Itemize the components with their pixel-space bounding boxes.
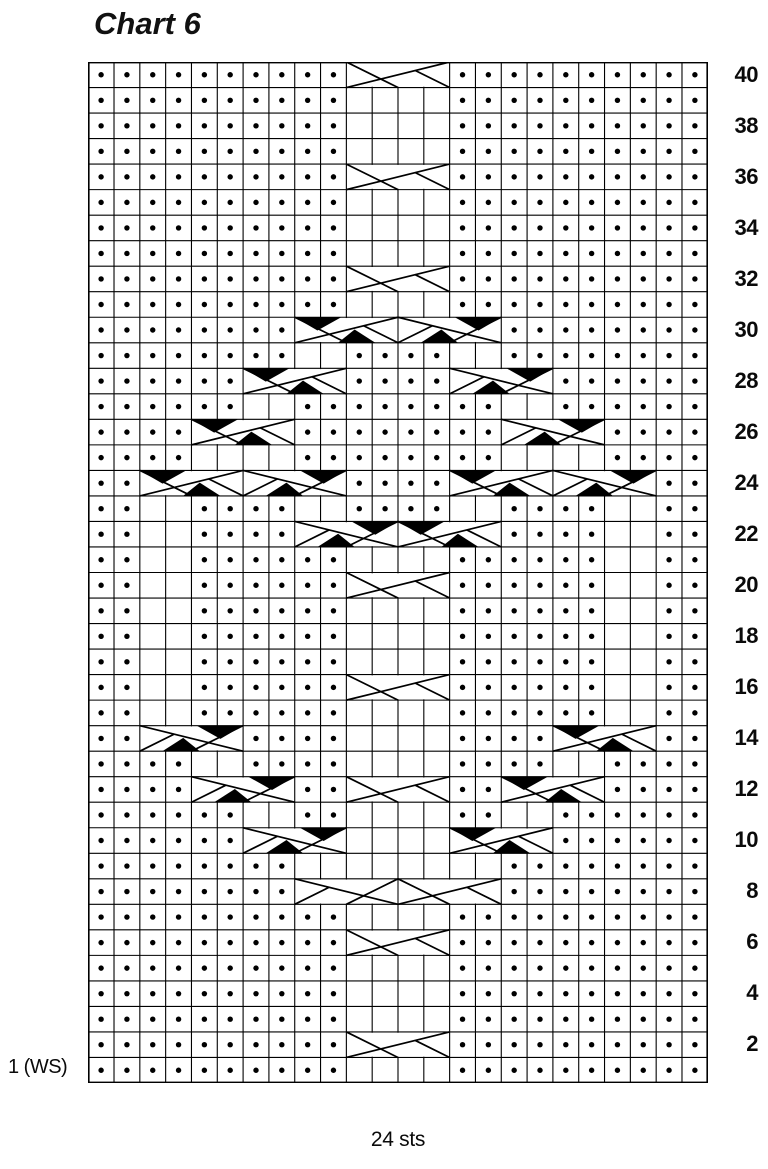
purl-dot xyxy=(563,378,568,383)
purl-dot xyxy=(202,991,207,996)
purl-dot xyxy=(511,940,516,945)
purl-dot xyxy=(305,634,310,639)
stitch-count-label: 24 sts xyxy=(88,1128,708,1152)
purl-dot xyxy=(227,1042,232,1047)
purl-dot xyxy=(666,200,671,205)
cable-symbol xyxy=(191,419,294,445)
cable-symbol xyxy=(553,726,656,752)
purl-dot xyxy=(253,685,258,690)
purl-dot xyxy=(460,302,465,307)
cable-symbol xyxy=(346,777,449,803)
purl-dot xyxy=(666,98,671,103)
purl-dot xyxy=(589,532,594,537)
purl-dot xyxy=(202,251,207,256)
purl-dot xyxy=(98,1016,103,1021)
purl-dot xyxy=(460,1068,465,1073)
purl-dot xyxy=(227,378,232,383)
purl-dot xyxy=(98,302,103,307)
cable-symbol xyxy=(243,368,346,394)
purl-dot xyxy=(537,685,542,690)
purl-dot xyxy=(666,276,671,281)
purl-dot xyxy=(331,251,336,256)
purl-dot xyxy=(666,557,671,562)
purl-dot xyxy=(434,455,439,460)
purl-dot xyxy=(589,991,594,996)
cable-symbol xyxy=(398,317,501,343)
purl-dot xyxy=(98,276,103,281)
purl-dot xyxy=(279,685,284,690)
purl-dot xyxy=(227,608,232,613)
purl-dot xyxy=(615,761,620,766)
purl-dot xyxy=(150,302,155,307)
purl-dot xyxy=(692,251,697,256)
cable-symbol xyxy=(243,470,346,496)
purl-dot xyxy=(486,200,491,205)
purl-dot xyxy=(641,455,646,460)
purl-dot xyxy=(305,174,310,179)
purl-dot xyxy=(666,251,671,256)
purl-dot xyxy=(382,455,387,460)
purl-dot xyxy=(511,710,516,715)
purl-dot xyxy=(537,1042,542,1047)
purl-dot xyxy=(692,710,697,715)
purl-dot xyxy=(279,225,284,230)
purl-dot xyxy=(563,98,568,103)
purl-dot xyxy=(537,174,542,179)
purl-dot xyxy=(486,72,491,77)
purl-dot xyxy=(202,1068,207,1073)
purl-dot xyxy=(331,761,336,766)
purl-dot xyxy=(150,1068,155,1073)
purl-dot xyxy=(305,736,310,741)
purl-dot xyxy=(408,353,413,358)
purl-dot xyxy=(511,532,516,537)
purl-dot xyxy=(279,327,284,332)
purl-dot xyxy=(357,455,362,460)
purl-dot xyxy=(511,914,516,919)
purl-dot xyxy=(176,429,181,434)
purl-dot xyxy=(486,123,491,128)
purl-dot xyxy=(589,1042,594,1047)
purl-dot xyxy=(692,608,697,613)
purl-dot xyxy=(227,532,232,537)
purl-dot xyxy=(666,710,671,715)
purl-dot xyxy=(641,991,646,996)
purl-dot xyxy=(589,557,594,562)
purl-dot xyxy=(641,1068,646,1073)
cable-symbol xyxy=(450,470,553,496)
purl-dot xyxy=(692,404,697,409)
purl-dot xyxy=(460,200,465,205)
purl-dot xyxy=(253,583,258,588)
purl-dot xyxy=(176,225,181,230)
purl-dot xyxy=(589,710,594,715)
purl-dot xyxy=(589,225,594,230)
purl-dot xyxy=(511,302,516,307)
purl-dot xyxy=(615,72,620,77)
purl-dot xyxy=(615,455,620,460)
row-number: 4 xyxy=(714,980,758,1006)
purl-dot xyxy=(615,429,620,434)
purl-dot xyxy=(615,991,620,996)
purl-dot xyxy=(227,225,232,230)
purl-dot xyxy=(357,378,362,383)
purl-dot xyxy=(176,863,181,868)
purl-dot xyxy=(460,991,465,996)
purl-dot xyxy=(563,940,568,945)
purl-dot xyxy=(615,327,620,332)
purl-dot xyxy=(202,889,207,894)
purl-dot xyxy=(150,98,155,103)
purl-dot xyxy=(486,455,491,460)
purl-dot xyxy=(253,991,258,996)
purl-dot xyxy=(124,1068,129,1073)
purl-dot xyxy=(227,659,232,664)
purl-dot xyxy=(486,736,491,741)
purl-dot xyxy=(460,225,465,230)
knitting-chart-page: Chart 6 40383634323028262422201816141210… xyxy=(0,0,768,1169)
purl-dot xyxy=(202,353,207,358)
cable-symbol xyxy=(450,368,553,394)
purl-dot xyxy=(486,634,491,639)
purl-dot xyxy=(589,685,594,690)
purl-dot xyxy=(615,174,620,179)
purl-dot xyxy=(98,251,103,256)
purl-dot xyxy=(331,123,336,128)
purl-dot xyxy=(666,123,671,128)
purl-dot xyxy=(641,149,646,154)
purl-dot xyxy=(150,276,155,281)
purl-dot xyxy=(202,940,207,945)
purl-dot xyxy=(563,149,568,154)
purl-dot xyxy=(563,225,568,230)
purl-dot xyxy=(434,404,439,409)
purl-dot xyxy=(305,276,310,281)
purl-dot xyxy=(305,1068,310,1073)
purl-dot xyxy=(279,506,284,511)
purl-dot xyxy=(563,991,568,996)
purl-dot xyxy=(305,1016,310,1021)
purl-dot xyxy=(486,685,491,690)
purl-dot xyxy=(176,200,181,205)
purl-dot xyxy=(692,1068,697,1073)
purl-dot xyxy=(98,1042,103,1047)
purl-dot xyxy=(305,123,310,128)
purl-dot xyxy=(486,1068,491,1073)
purl-dot xyxy=(460,965,465,970)
purl-dot xyxy=(124,685,129,690)
purl-dot xyxy=(253,1068,258,1073)
purl-dot xyxy=(227,327,232,332)
purl-dot xyxy=(486,1016,491,1021)
purl-dot xyxy=(692,685,697,690)
purl-dot xyxy=(511,965,516,970)
purl-dot xyxy=(150,353,155,358)
purl-dot xyxy=(692,174,697,179)
purl-dot xyxy=(408,506,413,511)
purl-dot xyxy=(98,557,103,562)
purl-dot xyxy=(227,889,232,894)
purl-dot xyxy=(692,225,697,230)
purl-dot xyxy=(615,863,620,868)
purl-dot xyxy=(124,761,129,766)
purl-dot xyxy=(124,174,129,179)
purl-dot xyxy=(460,787,465,792)
purl-dot xyxy=(563,327,568,332)
purl-dot xyxy=(589,98,594,103)
purl-dot xyxy=(666,353,671,358)
purl-dot xyxy=(124,455,129,460)
purl-dot xyxy=(666,429,671,434)
purl-dot xyxy=(563,659,568,664)
purl-dot xyxy=(124,659,129,664)
purl-dot xyxy=(563,72,568,77)
purl-dot xyxy=(176,965,181,970)
purl-dot xyxy=(563,251,568,256)
purl-dot xyxy=(202,532,207,537)
purl-dot xyxy=(305,914,310,919)
purl-dot xyxy=(176,404,181,409)
purl-dot xyxy=(382,429,387,434)
purl-dot xyxy=(98,965,103,970)
purl-dot xyxy=(511,634,516,639)
purl-dot xyxy=(692,940,697,945)
purl-dot xyxy=(279,889,284,894)
purl-dot xyxy=(511,685,516,690)
cable-symbol xyxy=(398,879,501,905)
purl-dot xyxy=(305,812,310,817)
purl-dot xyxy=(615,353,620,358)
purl-dot xyxy=(692,736,697,741)
purl-dot xyxy=(98,889,103,894)
purl-dot xyxy=(486,302,491,307)
purl-dot xyxy=(331,940,336,945)
purl-dot xyxy=(150,940,155,945)
purl-dot xyxy=(641,965,646,970)
purl-dot xyxy=(692,378,697,383)
cable-symbol xyxy=(191,777,294,803)
purl-dot xyxy=(202,149,207,154)
purl-dot xyxy=(460,914,465,919)
purl-dot xyxy=(202,225,207,230)
purl-dot xyxy=(460,174,465,179)
purl-dot xyxy=(253,174,258,179)
purl-dot xyxy=(537,940,542,945)
purl-dot xyxy=(692,149,697,154)
cable-symbol xyxy=(243,828,346,854)
purl-dot xyxy=(511,736,516,741)
purl-dot xyxy=(98,506,103,511)
purl-dot xyxy=(124,429,129,434)
purl-dot xyxy=(692,506,697,511)
purl-dot xyxy=(563,889,568,894)
purl-dot xyxy=(460,736,465,741)
purl-dot xyxy=(382,353,387,358)
purl-dot xyxy=(227,710,232,715)
purl-dot xyxy=(98,225,103,230)
purl-dot xyxy=(305,659,310,664)
purl-dot xyxy=(176,353,181,358)
row-number: 14 xyxy=(714,725,758,751)
purl-dot xyxy=(331,455,336,460)
row-number: 24 xyxy=(714,470,758,496)
purl-dot xyxy=(279,302,284,307)
purl-dot xyxy=(692,200,697,205)
row-number: 20 xyxy=(714,572,758,598)
purl-dot xyxy=(202,838,207,843)
purl-dot xyxy=(460,72,465,77)
purl-dot xyxy=(692,557,697,562)
purl-dot xyxy=(563,404,568,409)
purl-dot xyxy=(615,1042,620,1047)
purl-dot xyxy=(692,583,697,588)
purl-dot xyxy=(666,1016,671,1021)
cable-symbol xyxy=(346,930,449,956)
purl-dot xyxy=(176,761,181,766)
purl-dot xyxy=(253,532,258,537)
purl-dot xyxy=(279,200,284,205)
purl-dot xyxy=(666,174,671,179)
purl-dot xyxy=(666,327,671,332)
purl-dot xyxy=(511,761,516,766)
purl-dot xyxy=(486,965,491,970)
purl-dot xyxy=(253,200,258,205)
purl-dot xyxy=(537,863,542,868)
purl-dot xyxy=(176,940,181,945)
purl-dot xyxy=(279,174,284,179)
purl-dot xyxy=(511,991,516,996)
purl-dot xyxy=(692,991,697,996)
purl-dot xyxy=(227,404,232,409)
purl-dot xyxy=(511,506,516,511)
purl-dot xyxy=(98,914,103,919)
purl-dot xyxy=(589,914,594,919)
purl-dot xyxy=(563,812,568,817)
purl-dot xyxy=(434,480,439,485)
purl-dot xyxy=(98,634,103,639)
purl-dot xyxy=(615,940,620,945)
purl-dot xyxy=(124,889,129,894)
purl-dot xyxy=(150,965,155,970)
purl-dot xyxy=(641,123,646,128)
purl-dot xyxy=(589,174,594,179)
purl-dot xyxy=(227,174,232,179)
purl-dot xyxy=(202,98,207,103)
purl-dot xyxy=(615,812,620,817)
purl-dot xyxy=(486,98,491,103)
purl-dot xyxy=(511,1042,516,1047)
purl-dot xyxy=(563,583,568,588)
purl-dot xyxy=(279,710,284,715)
purl-dot xyxy=(124,72,129,77)
purl-dot xyxy=(563,123,568,128)
purl-dot xyxy=(692,480,697,485)
purl-dot xyxy=(486,710,491,715)
purl-dot xyxy=(305,404,310,409)
purl-dot xyxy=(227,123,232,128)
purl-dot xyxy=(98,429,103,434)
cable-symbol xyxy=(140,470,243,496)
purl-dot xyxy=(331,1016,336,1021)
purl-dot xyxy=(124,98,129,103)
purl-dot xyxy=(331,302,336,307)
purl-dot xyxy=(305,72,310,77)
purl-dot xyxy=(331,787,336,792)
purl-dot xyxy=(511,251,516,256)
purl-dot xyxy=(486,276,491,281)
purl-dot xyxy=(227,149,232,154)
purl-dot xyxy=(98,174,103,179)
purl-dot xyxy=(434,429,439,434)
purl-dot xyxy=(279,1068,284,1073)
purl-dot xyxy=(331,225,336,230)
purl-dot xyxy=(511,889,516,894)
purl-dot xyxy=(563,1068,568,1073)
purl-dot xyxy=(486,557,491,562)
purl-dot xyxy=(666,914,671,919)
purl-dot xyxy=(589,812,594,817)
purl-dot xyxy=(666,889,671,894)
purl-dot xyxy=(537,123,542,128)
purl-dot xyxy=(253,863,258,868)
purl-dot xyxy=(124,940,129,945)
purl-dot xyxy=(563,276,568,281)
purl-dot xyxy=(615,965,620,970)
purl-dot xyxy=(641,889,646,894)
purl-dot xyxy=(486,174,491,179)
purl-dot xyxy=(305,965,310,970)
purl-dot xyxy=(331,276,336,281)
purl-dot xyxy=(331,812,336,817)
purl-dot xyxy=(124,863,129,868)
purl-dot xyxy=(150,72,155,77)
purl-dot xyxy=(589,123,594,128)
purl-dot xyxy=(279,557,284,562)
purl-dot xyxy=(641,251,646,256)
purl-dot xyxy=(202,634,207,639)
purl-dot xyxy=(279,251,284,256)
purl-dot xyxy=(537,583,542,588)
purl-dot xyxy=(150,1016,155,1021)
purl-dot xyxy=(176,914,181,919)
purl-dot xyxy=(305,149,310,154)
purl-dot xyxy=(98,812,103,817)
purl-dot xyxy=(124,787,129,792)
purl-dot xyxy=(202,200,207,205)
purl-dot xyxy=(563,634,568,639)
purl-dot xyxy=(486,761,491,766)
row-number: 2 xyxy=(714,1031,758,1057)
purl-dot xyxy=(511,174,516,179)
purl-dot xyxy=(537,659,542,664)
purl-dot xyxy=(511,327,516,332)
purl-dot xyxy=(589,838,594,843)
purl-dot xyxy=(641,353,646,358)
purl-dot xyxy=(692,353,697,358)
purl-dot xyxy=(253,1016,258,1021)
purl-dot xyxy=(227,353,232,358)
purl-dot xyxy=(98,353,103,358)
purl-dot xyxy=(666,608,671,613)
purl-dot xyxy=(253,710,258,715)
purl-dot xyxy=(124,225,129,230)
purl-dot xyxy=(641,327,646,332)
purl-dot xyxy=(124,710,129,715)
cable-symbol xyxy=(346,62,449,88)
purl-dot xyxy=(589,378,594,383)
purl-dot xyxy=(124,276,129,281)
purl-dot xyxy=(98,608,103,613)
